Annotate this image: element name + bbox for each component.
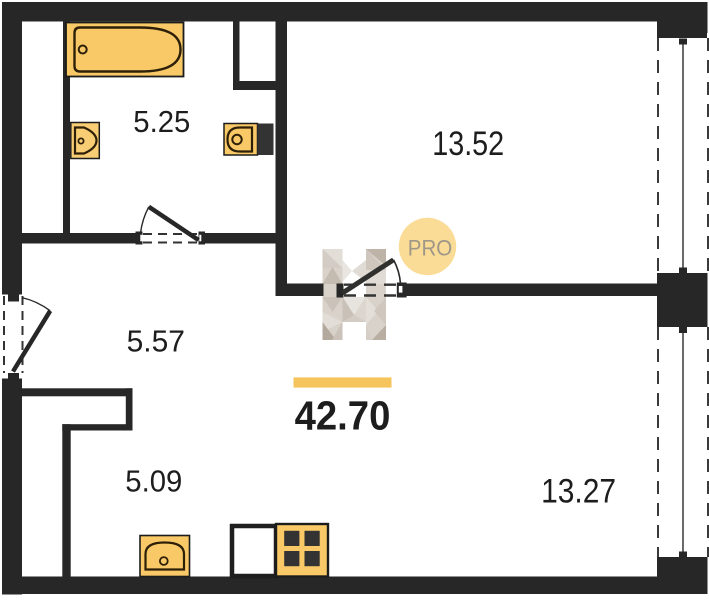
svg-text:13.52: 13.52	[432, 125, 504, 163]
svg-text:PRO: PRO	[408, 235, 453, 260]
svg-text:5.09: 5.09	[125, 464, 182, 499]
svg-text:13.27: 13.27	[541, 473, 616, 511]
svg-text:5.57: 5.57	[127, 324, 185, 359]
svg-text:42.70: 42.70	[295, 393, 391, 439]
svg-text:5.25: 5.25	[133, 104, 190, 139]
